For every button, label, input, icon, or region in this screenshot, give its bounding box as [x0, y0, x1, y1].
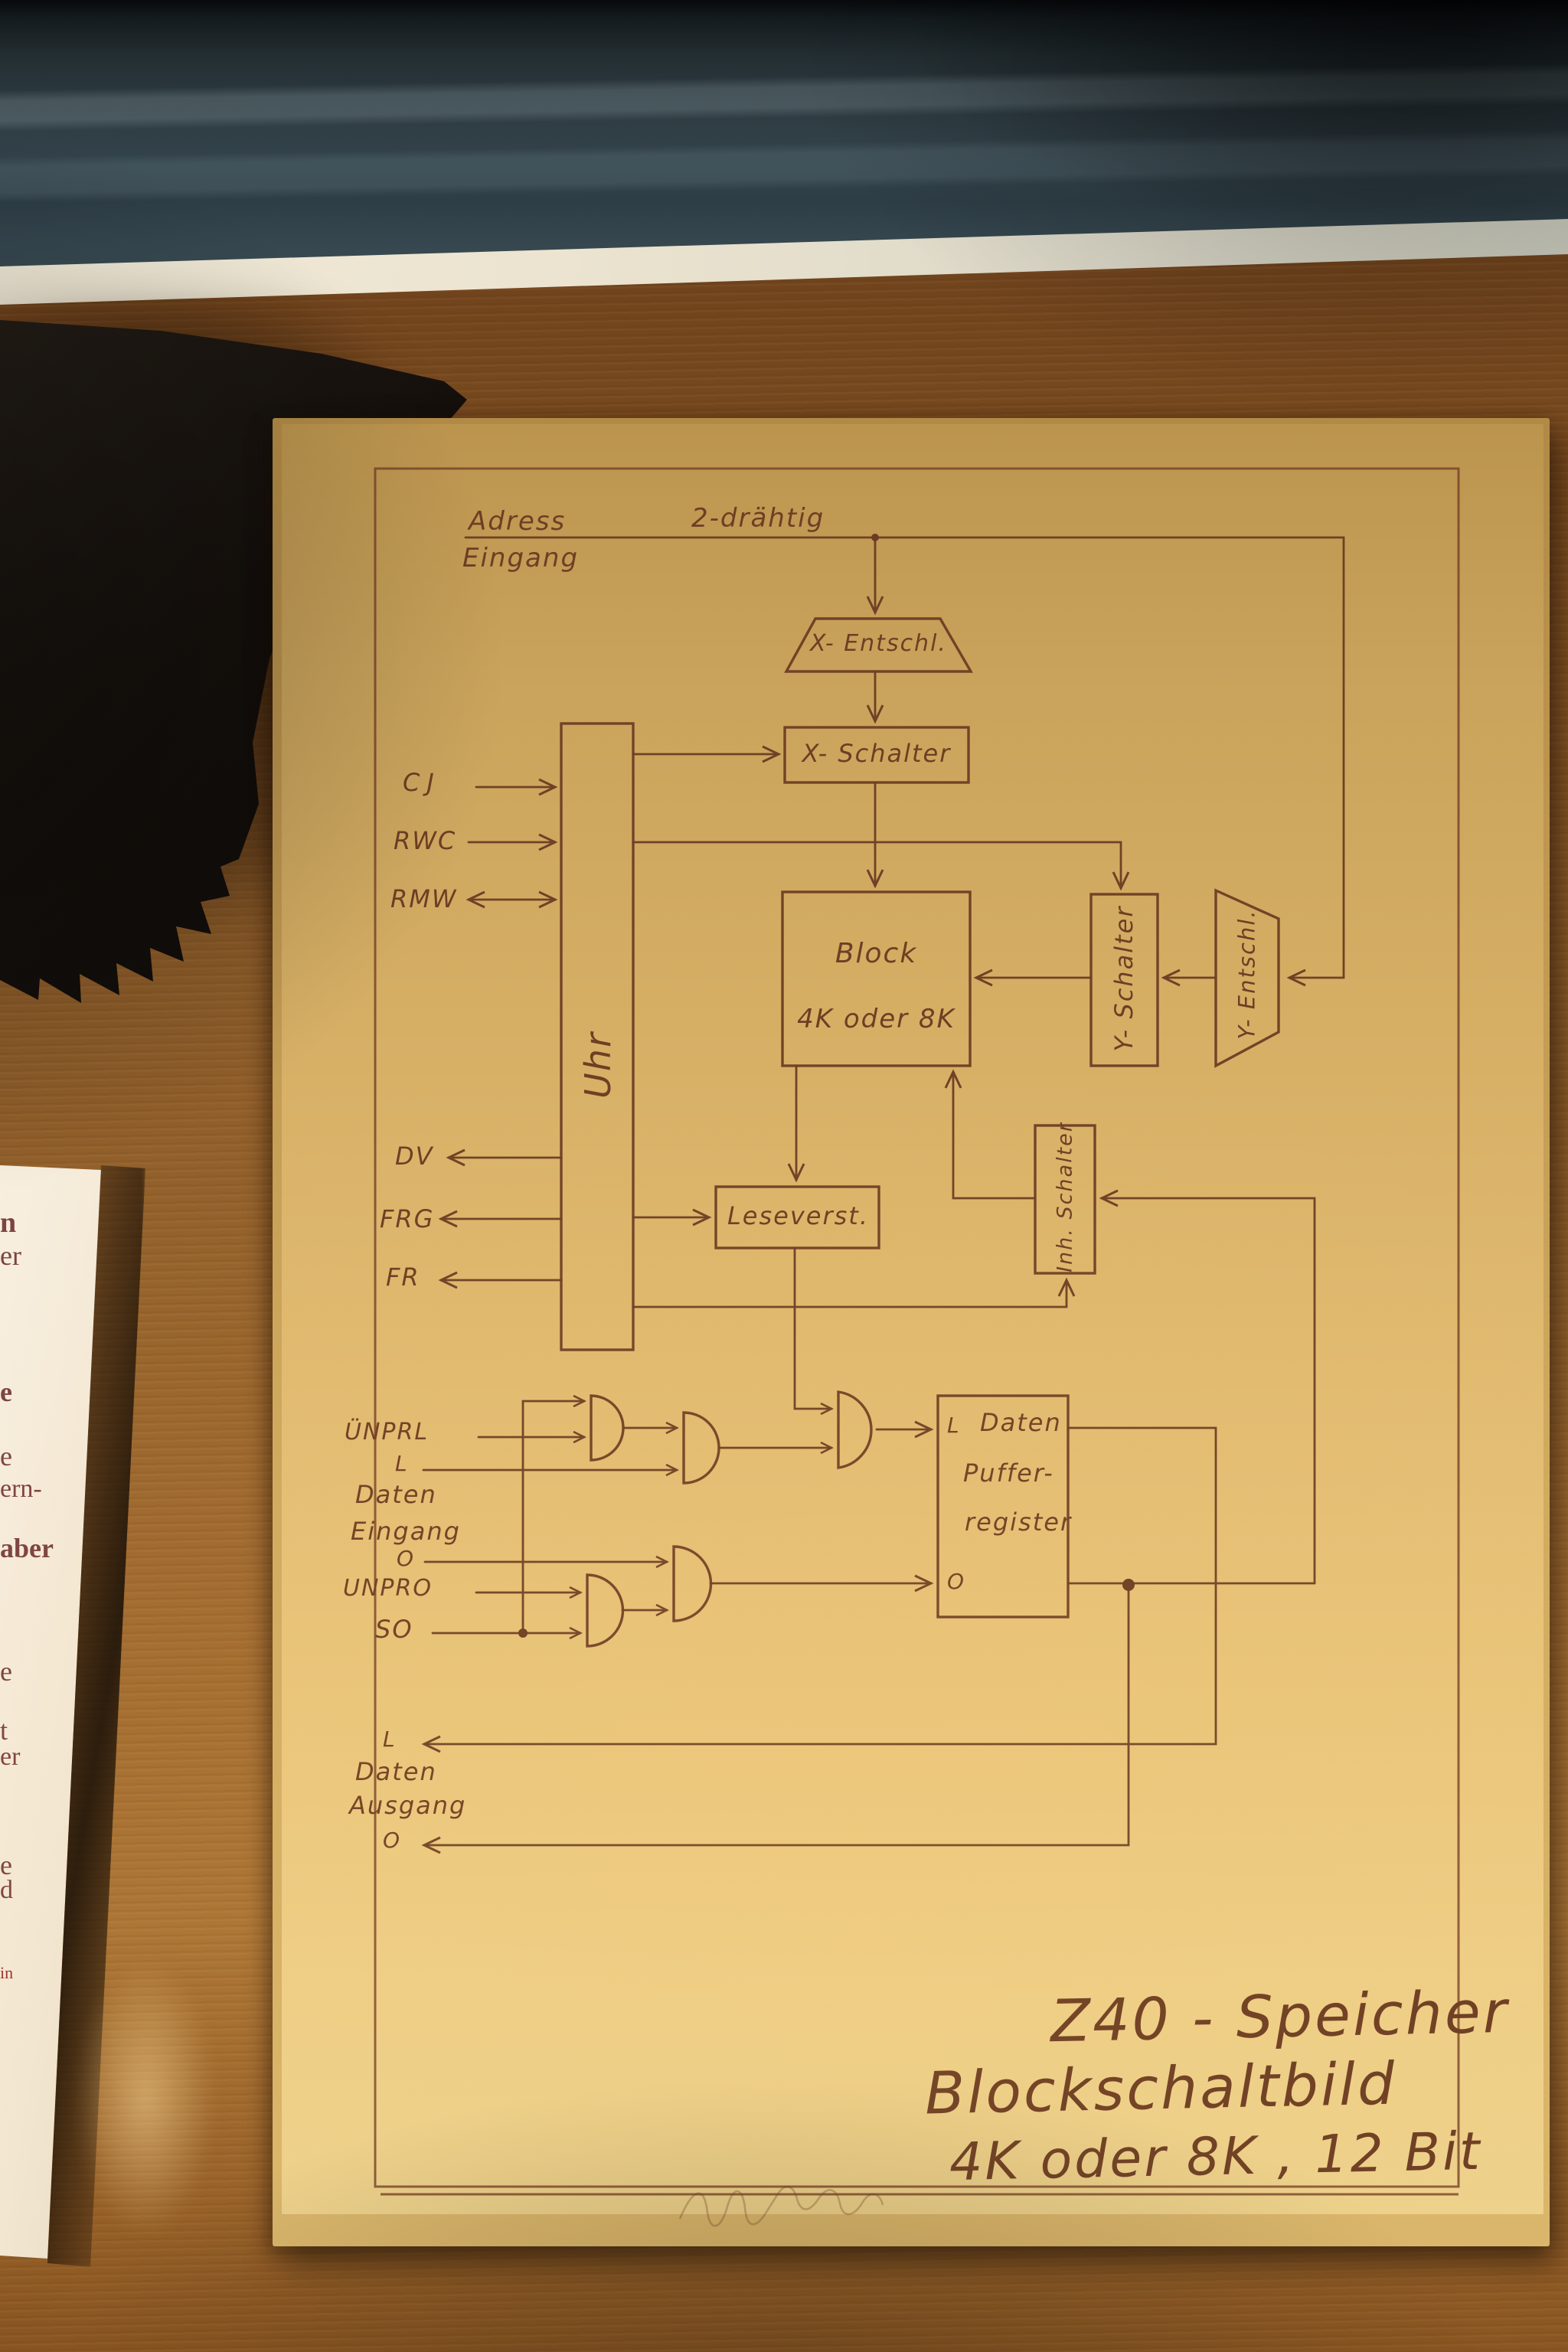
card-text-fragment: er [0, 1242, 21, 1269]
card-text-fragment: e [0, 1851, 12, 1879]
card-text-fragment: ern- [0, 1476, 42, 1502]
label-fr: FR [386, 1265, 420, 1289]
label-eingang-in: Eingang [351, 1519, 461, 1543]
label-daten-in: Daten [355, 1482, 437, 1507]
label-x-entschl: X- Entschl. [796, 632, 961, 655]
label-so: SO [375, 1617, 413, 1641]
label-block-size: 4K oder 8K [782, 1006, 970, 1032]
label-l-in: L [395, 1453, 409, 1475]
label-leseverst: Leseverst. [720, 1204, 877, 1228]
diagram-paper [282, 424, 1543, 2214]
label-uhr: Uhr [580, 988, 616, 1142]
title-z40-speicher: Z40 - Speicher [1050, 1983, 1509, 2051]
light-glare [46, 1899, 245, 2297]
label-y-schalter: Y- Schalter [1112, 887, 1136, 1070]
label-x-schalter: X- Schalter [792, 741, 961, 766]
label-daten-out: Daten [355, 1759, 437, 1784]
card-text-fragment: d [0, 1877, 13, 1903]
label-register-o: O [947, 1571, 965, 1592]
label-2-draehtig: 2-drähtig [691, 505, 825, 531]
card-text-fragment: e [0, 1378, 12, 1406]
card-text-fragment: aber [0, 1534, 54, 1562]
card-text-fragment: in [0, 1965, 13, 1981]
label-register-daten: Daten [980, 1410, 1062, 1435]
label-frg: FRG [380, 1207, 434, 1231]
label-ausgang-out: Ausgang [349, 1793, 466, 1818]
card-text-fragment: e [0, 1658, 12, 1685]
card-text-fragment: er [0, 1744, 20, 1770]
label-adress: Adress [469, 508, 566, 534]
label-unprl: ÜNPRL [345, 1421, 429, 1444]
label-register-register: register [965, 1510, 1072, 1534]
label-o-in: O [397, 1548, 415, 1570]
label-block: Block [782, 940, 970, 968]
label-unpro: UNPRO [343, 1577, 433, 1600]
label-register-l: L [947, 1415, 961, 1436]
label-register-puffer: Puffer- [963, 1461, 1054, 1485]
label-eingang-top: Eingang [462, 545, 579, 571]
title-blockschaltbild: Blockschaltbild [924, 2055, 1397, 2123]
label-rmw: RMW [390, 887, 457, 911]
label-dv: DV [395, 1144, 434, 1168]
label-o-out: O [383, 1830, 401, 1851]
label-inh-schalter: Inh. Schalter [1055, 1117, 1076, 1278]
card-text-fragment: n [0, 1208, 16, 1237]
card-text-fragment: t [0, 1717, 8, 1744]
label-rwc: RWC [394, 828, 456, 853]
label-cj: CJ [403, 770, 441, 795]
card-text-fragment: e [0, 1442, 12, 1470]
label-y-entschl: Y- Entschl. [1236, 898, 1259, 1051]
title-capacity: 4K oder 8K , 12 Bit [949, 2126, 1482, 2190]
museum-photo: n er e e ern- aber e t er e d in [0, 0, 1568, 2352]
label-l-out: L [383, 1729, 397, 1750]
